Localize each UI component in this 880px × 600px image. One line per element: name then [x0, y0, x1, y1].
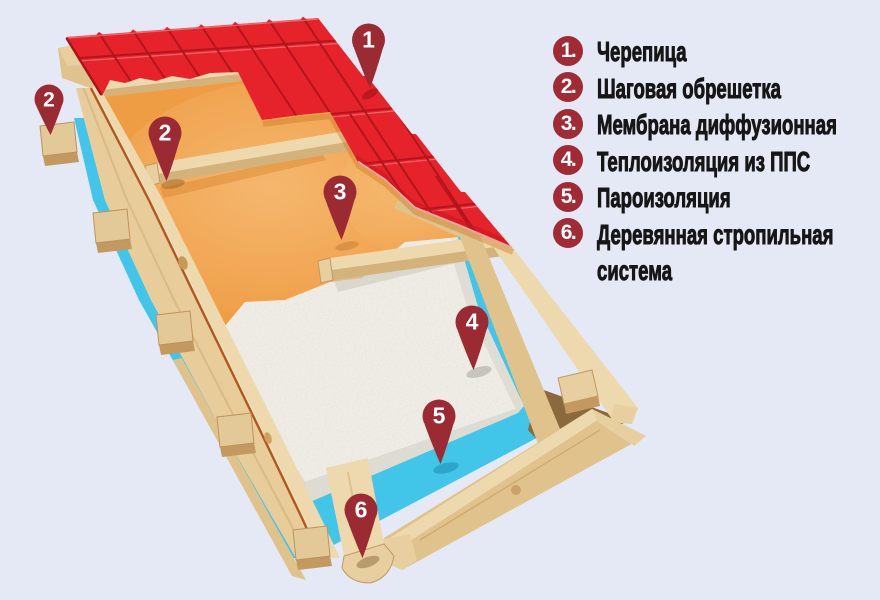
svg-text:4: 4 — [466, 309, 479, 335]
svg-text:2: 2 — [159, 120, 172, 146]
svg-text:2: 2 — [43, 89, 55, 112]
svg-text:1: 1 — [362, 27, 375, 53]
svg-text:5: 5 — [433, 403, 446, 429]
svg-text:3: 3 — [334, 179, 347, 205]
svg-text:6: 6 — [355, 497, 368, 523]
